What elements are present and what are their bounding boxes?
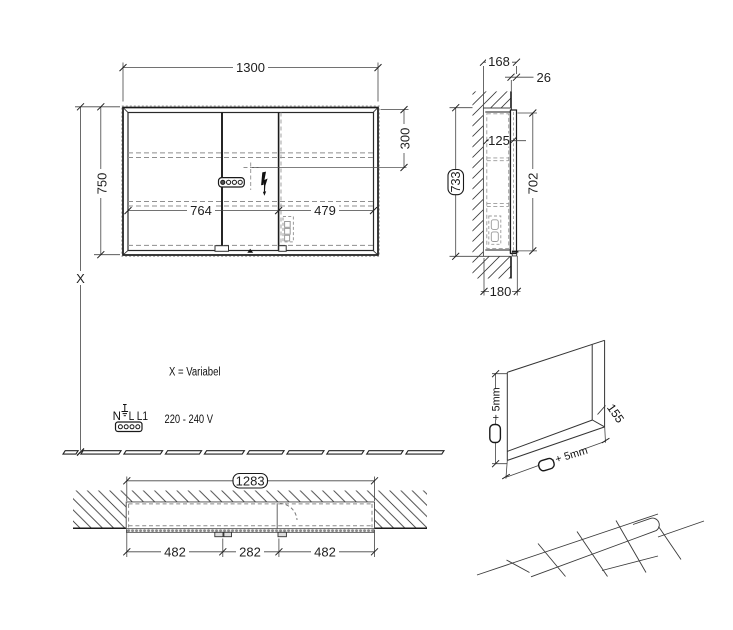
svg-text:282: 282 bbox=[239, 544, 261, 559]
svg-text:1283: 1283 bbox=[236, 473, 265, 488]
svg-text:125: 125 bbox=[488, 133, 510, 148]
svg-text:733: 733 bbox=[448, 172, 463, 193]
svg-text:+ 5mm: + 5mm bbox=[491, 387, 503, 420]
svg-text:482: 482 bbox=[164, 544, 186, 559]
svg-text:750: 750 bbox=[95, 173, 110, 195]
svg-text:764: 764 bbox=[190, 203, 212, 218]
svg-text:479: 479 bbox=[314, 203, 336, 218]
svg-text:X = Variabel: X = Variabel bbox=[169, 366, 221, 378]
svg-text:168: 168 bbox=[488, 54, 510, 69]
svg-text:702: 702 bbox=[526, 173, 541, 195]
svg-text:300: 300 bbox=[398, 128, 413, 150]
svg-text:1300: 1300 bbox=[236, 60, 265, 75]
svg-text:180: 180 bbox=[490, 284, 512, 299]
svg-text:26: 26 bbox=[537, 70, 551, 85]
svg-text:482: 482 bbox=[314, 544, 336, 559]
svg-text:X: X bbox=[76, 271, 85, 286]
svg-text:N: N bbox=[113, 411, 121, 423]
svg-text:220 - 240 V: 220 - 240 V bbox=[165, 414, 214, 426]
svg-text:L L1: L L1 bbox=[129, 411, 149, 423]
